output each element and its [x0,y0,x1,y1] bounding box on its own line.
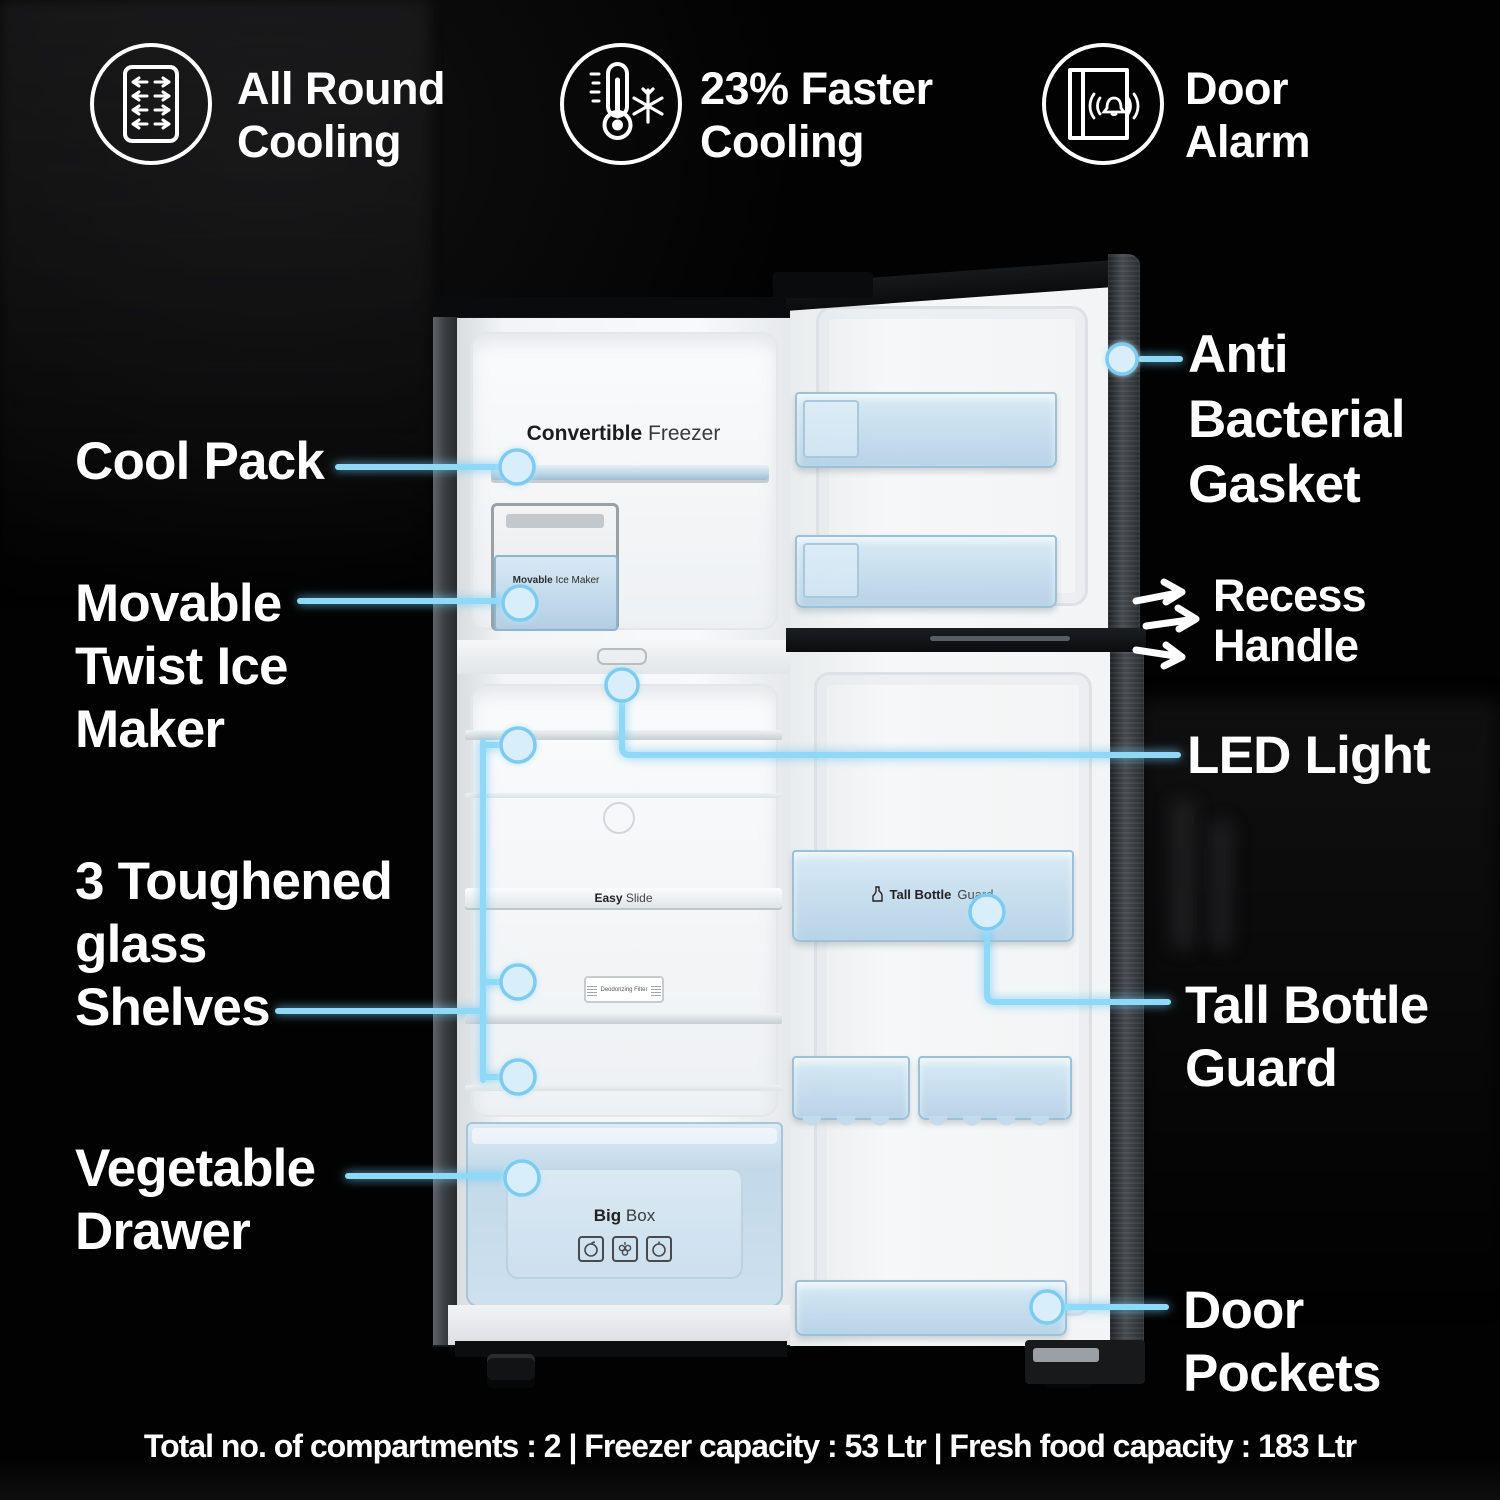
cool-pack-dot [500,450,534,484]
vegetable-drawer-dot [505,1161,539,1195]
shelf-2-dot [501,965,535,999]
shelf-3-dot [501,1060,535,1094]
callout-graphics [0,0,1500,1500]
led-light-line [622,700,1178,755]
recess-handle-arrows [1136,582,1196,666]
shelves-line [278,742,501,1080]
tall-bottle-guard-line [987,929,1168,1002]
recess-arrow-2 [1146,608,1196,629]
callout-dots [500,344,1137,1323]
product-feature-image: All Round Cooling 23% Faster Cooling [0,0,1500,1500]
gasket-dot [1107,344,1137,374]
ice-maker-dot [503,586,537,620]
tall-bottle-guard-dot [970,895,1004,929]
recess-arrow-1 [1136,582,1182,602]
led-light-dot [606,669,638,701]
recess-arrow-3 [1136,645,1182,666]
door-pockets-dot [1031,1291,1063,1323]
callout-lines [278,359,1180,1307]
shelf-1-dot [501,728,535,762]
